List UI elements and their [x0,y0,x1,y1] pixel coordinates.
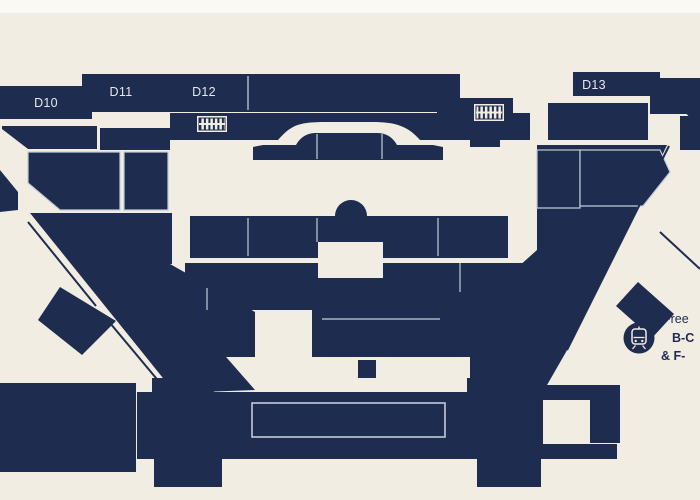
train-note-line2: B-C [672,331,694,345]
terminal-block [548,103,648,140]
terminal-block [100,128,170,150]
terminal-map: D10 D11 D12 D13 Free B-C & F- [0,0,700,500]
kiosk-block [358,360,376,378]
gate-label-d11: D11 [110,85,133,99]
top-margin [0,0,700,13]
gate-label-d12: D12 [192,85,216,99]
moving-walkway-icon [474,104,504,121]
outlined-hall [252,403,445,437]
gate-area-d11-d12 [82,74,460,112]
gate-label-d10: D10 [34,96,58,110]
terminal-block [124,152,168,210]
train-station-icon [624,323,655,354]
train-note-line3: & F- [661,349,685,363]
terminal-block [470,139,500,147]
terminal-map-canvas: D10 D11 D12 D13 Free B-C & F- [0,0,700,500]
train-note-line1: Free [663,312,689,326]
gate-label-d13: D13 [582,78,606,92]
moving-walkway-icon [197,116,227,132]
terminal-block [537,150,580,208]
